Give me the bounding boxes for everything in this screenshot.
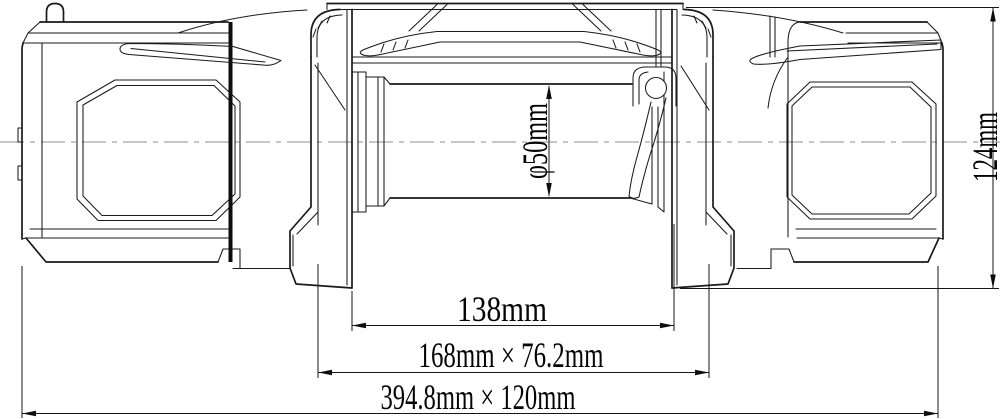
vent-fin bbox=[750, 40, 941, 64]
overall-height-label: 124mm bbox=[965, 112, 1000, 182]
support-corner bbox=[311, 10, 340, 58]
gusset-curve bbox=[768, 57, 788, 108]
dimension-annotations: φ50mm 124mm 138mm 168mm × 76.2mm 394.8mm… bbox=[22, 8, 1000, 419]
tensioner-arm bbox=[629, 98, 666, 198]
housing-left-edge bbox=[788, 22, 800, 237]
support-corner bbox=[684, 10, 713, 58]
housing-bottom-step bbox=[737, 249, 794, 269]
frame-plate-lines bbox=[352, 57, 672, 63]
right-clutch-housing bbox=[713, 10, 943, 269]
support-corner-inner bbox=[682, 15, 707, 57]
drum-assembly bbox=[352, 67, 676, 212]
housing-bezel-lines bbox=[23, 22, 228, 43]
support-column bbox=[672, 57, 734, 288]
housing-bottom-bezels bbox=[22, 229, 228, 239]
winch-technical-drawing: φ50mm 124mm 138mm 168mm × 76.2mm 394.8mm… bbox=[0, 0, 1000, 419]
frame-crossbar bbox=[327, 4, 683, 64]
housing-panel bbox=[787, 82, 936, 219]
housing-panel bbox=[77, 80, 240, 221]
housing-panel-inner bbox=[792, 87, 931, 214]
mount-bolt-pattern-label: 168mm × 76.2mm bbox=[419, 335, 604, 375]
housing-left-edge bbox=[22, 43, 23, 239]
housing-bottom-edge bbox=[794, 238, 939, 262]
overall-footprint-label: 394.8mm × 120mm bbox=[381, 377, 576, 417]
support-column bbox=[290, 57, 352, 288]
drum-barrel bbox=[390, 84, 632, 198]
frame-diagonal-braces bbox=[409, 5, 611, 32]
housing-right-edge bbox=[942, 43, 943, 239]
drum-diameter-label: φ50mm bbox=[515, 103, 555, 179]
housing-bezel-lines bbox=[846, 22, 942, 43]
housing-bottom-bezels bbox=[796, 229, 943, 239]
support-brace bbox=[315, 65, 345, 110]
vent-fin bbox=[120, 44, 281, 66]
right-drum-support bbox=[656, 10, 734, 289]
frame-top-lines bbox=[327, 4, 683, 10]
drum-inner-width-label: 138mm bbox=[457, 289, 547, 329]
support-corner-inner bbox=[317, 15, 342, 57]
tie-bar bbox=[360, 32, 661, 56]
dim-drum-diameter: φ50mm bbox=[515, 85, 555, 197]
support-foot-lines bbox=[706, 212, 731, 266]
dim-overall-height: 124mm bbox=[680, 8, 1000, 289]
housing-bottom-edge bbox=[26, 238, 218, 262]
drawing-canvas: φ50mm 124mm 138mm 168mm × 76.2mm 394.8mm… bbox=[0, 0, 1000, 419]
left-drum-support bbox=[290, 10, 352, 289]
support-brace bbox=[681, 66, 709, 110]
dim-drum-inner-width: 138mm bbox=[352, 224, 674, 331]
vent-fin-inner-line bbox=[787, 44, 937, 51]
tension-roller bbox=[646, 78, 667, 99]
support-foot-lines bbox=[293, 212, 318, 266]
clutch-knob bbox=[47, 4, 64, 23]
housing-panel-inner bbox=[83, 86, 235, 216]
transition-posts bbox=[770, 16, 775, 57]
left-motor-housing bbox=[18, 4, 307, 269]
extension-lines bbox=[680, 8, 999, 289]
support-inner-lines bbox=[318, 10, 347, 285]
